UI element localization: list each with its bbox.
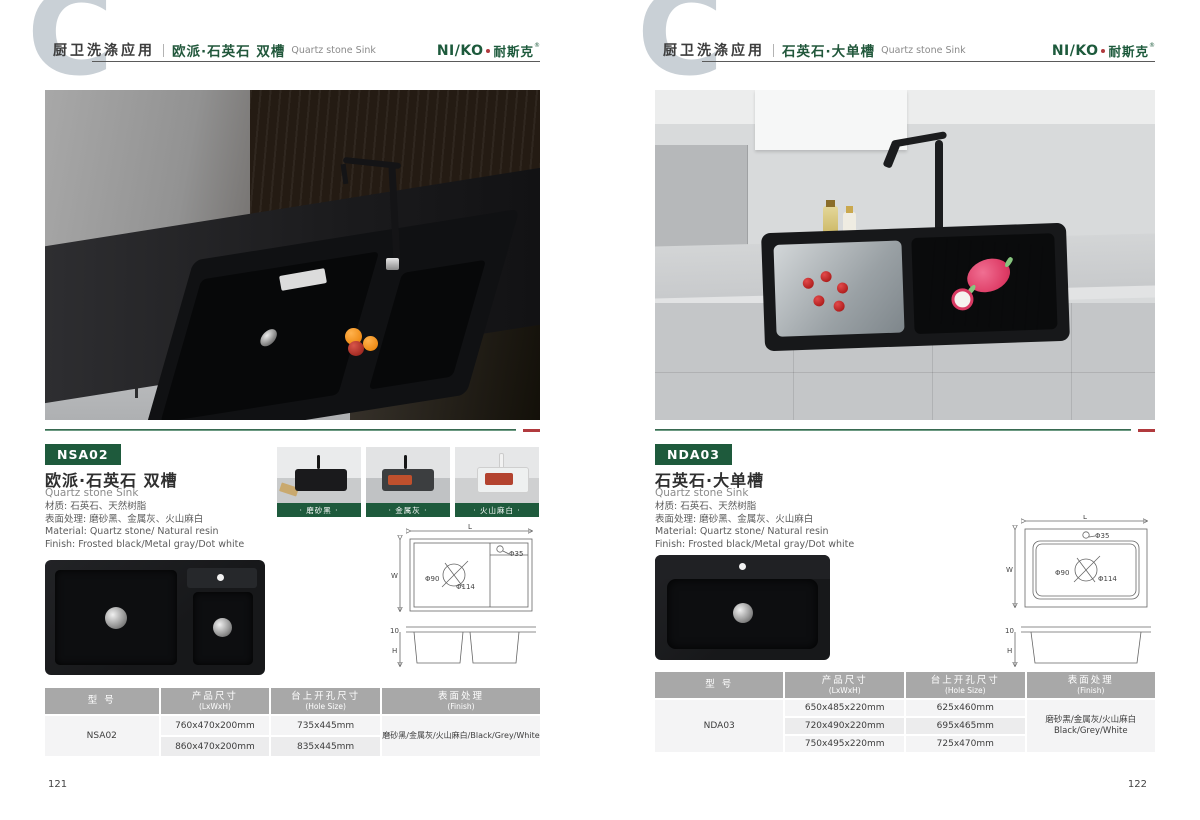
header-en: (Finish) [1077, 686, 1104, 695]
header-en: (LxWxH) [199, 702, 231, 711]
section-rule [45, 429, 540, 432]
category-title-cn: 欧派·石英石 双槽 [172, 40, 285, 60]
table-header-size: 产品尺寸 (LxWxH) [785, 672, 904, 698]
product-title-en: Quartz stone Sink [45, 487, 138, 499]
section-title: 厨卫洗涤应用 [53, 40, 155, 60]
swatch-label: · 金属灰 · [366, 503, 450, 517]
logo-latin-text: NI/KO [437, 43, 484, 59]
logo-red-dot [1101, 49, 1105, 53]
cell-hole: 625x460mm [906, 700, 1025, 716]
page-number: 122 [1128, 779, 1147, 790]
header-cn: 表面处理 [1068, 675, 1114, 686]
topview-faucet-hole [217, 574, 224, 581]
main-photo-nsa02 [45, 90, 540, 420]
diagram-faucet-hole [1083, 532, 1089, 538]
dim-label-d114: Φ114 [456, 583, 475, 591]
spec-material-cn: 材质: 石英石、天然树脂 [45, 501, 244, 514]
dimension-diagram: Φ35 Φ90 Φ114 L W 10 H [390, 523, 545, 673]
topview-drain [213, 618, 232, 637]
faucet-base [386, 258, 399, 270]
brand-logo: NI/KO 耐斯克 ® [1052, 41, 1155, 60]
swatch-sink-black [295, 469, 347, 491]
product-specs: 材质: 石英石、天然树脂 表面处理: 磨砂黑、金属灰、火山麻白 Material… [655, 501, 854, 551]
spec-finish-cn: 表面处理: 磨砂黑、金属灰、火山麻白 [45, 514, 244, 527]
swatch-faucet [404, 455, 407, 469]
finish-line: 磨砂黑/金属灰/火山麻白/Black/Grey/White [382, 731, 539, 742]
cell-hole: 695x465mm [906, 718, 1025, 734]
product-specs: 材质: 石英石、天然树脂 表面处理: 磨砂黑、金属灰、火山麻白 Material… [45, 501, 244, 551]
cell-finish: 磨砂黑/金属灰/火山麻白 Black/Grey/White [1027, 700, 1155, 752]
photo-orange [363, 336, 378, 351]
photo-wall-cabinet [755, 90, 907, 150]
model-badge: NDA03 [655, 444, 732, 465]
cell-finish: 磨砂黑/金属灰/火山麻白/Black/Grey/White [382, 716, 540, 756]
logo-reg-mark: ® [1149, 42, 1155, 49]
table-header-finish: 表面处理 (Finish) [382, 688, 540, 714]
dim-label-W: W [391, 572, 398, 580]
product-title-en: Quartz stone Sink [655, 487, 748, 499]
header-underline [92, 61, 540, 62]
swatch-faucet [317, 455, 320, 469]
dim-label-10: 10 [1005, 627, 1014, 635]
diagram-cross [1077, 558, 1095, 582]
tomato [803, 278, 814, 289]
cell-hole: 835x445mm [271, 737, 380, 756]
page-number: 121 [48, 779, 67, 790]
header-cn: 台上开孔尺寸 [291, 691, 360, 702]
header-cn: 产品尺寸 [192, 691, 238, 702]
cell-size: 760x470x200mm [161, 716, 270, 735]
header-en: (LxWxH) [829, 686, 861, 695]
cell-model: NDA03 [655, 700, 783, 752]
swatch-image [455, 447, 539, 503]
table-header-model: 型 号 [45, 688, 159, 714]
finish-line: Black/Grey/White [1054, 726, 1128, 737]
dim-label-L: L [468, 523, 472, 531]
dim-label-10: 10 [390, 627, 399, 635]
dim-label-H: H [1007, 647, 1012, 655]
finish-line: 磨砂黑/金属灰/火山麻白 [1045, 715, 1136, 726]
swatch-metal-gray: · 金属灰 · [366, 447, 450, 517]
sideview-basin1 [414, 632, 463, 663]
category-title-en: Quartz stone Sink [291, 45, 376, 56]
brand-logo: NI/KO 耐斯克 ® [437, 41, 540, 60]
logo-cn-text: 耐斯克 [493, 41, 534, 60]
main-photo-nda03 [655, 90, 1155, 420]
spec-table: 型 号 产品尺寸 (LxWxH) 台上开孔尺寸 (Hole Size) 表面处理… [45, 688, 540, 756]
topview-drain [105, 607, 127, 629]
header-separator [773, 44, 774, 57]
photo-apple [348, 341, 364, 356]
dim-label-d35: Φ35 [1095, 532, 1109, 540]
cell-size: 860x470x200mm [161, 737, 270, 756]
diagram-cross [1074, 556, 1100, 582]
catalog-page-122: C 厨卫洗涤应用 石英石·大单槽 Quartz stone Sink NI/KO… [655, 0, 1155, 820]
swatch-image [277, 447, 361, 503]
dim-label-d90: Φ90 [1055, 569, 1069, 577]
spec-material-en: Material: Quartz stone/ Natural resin [45, 526, 244, 539]
catalog-page-121: C 厨卫洗涤应用 欧派·石英石 双槽 Quartz stone Sink NI/… [45, 0, 540, 820]
header-cn: 产品尺寸 [822, 675, 868, 686]
logo-reg-mark: ® [534, 42, 540, 49]
header-en: (Finish) [447, 702, 474, 711]
sink-basin-small [369, 260, 486, 390]
header-cn: 台上开孔尺寸 [931, 675, 1000, 686]
dim-label-d35: Φ35 [509, 550, 523, 558]
bottle-cap [826, 200, 835, 207]
cell-hole: 725x470mm [906, 736, 1025, 752]
dim-label-W: W [1006, 566, 1013, 574]
cabinet-seam [655, 372, 1155, 373]
swatch-dot-white: · 火山麻白 · [455, 447, 539, 517]
header-cn: 型 号 [705, 679, 733, 690]
product-topview-photo [45, 560, 265, 675]
section-title: 厨卫洗涤应用 [663, 40, 765, 60]
cell-hole: 735x445mm [271, 716, 380, 735]
swatch-label: · 火山麻白 · [455, 503, 539, 517]
dim-label-H: H [392, 647, 397, 655]
model-badge: NSA02 [45, 444, 121, 465]
tomato [813, 295, 824, 306]
tomato [820, 271, 831, 282]
page-header: 厨卫洗涤应用 欧派·石英石 双槽 Quartz stone Sink [53, 40, 376, 60]
logo-red-dot [486, 49, 490, 53]
dim-label-d114: Φ114 [1098, 575, 1117, 583]
color-swatches: · 磨砂黑 · · 金属灰 · · 火山麻白 · [277, 447, 539, 517]
header-cn: 型 号 [88, 695, 116, 706]
page-header: 厨卫洗涤应用 石英石·大单槽 Quartz stone Sink [663, 40, 966, 60]
tomato [837, 282, 848, 293]
table-header-size: 产品尺寸 (LxWxH) [161, 688, 270, 714]
swatch-frosted-black: · 磨砂黑 · [277, 447, 361, 517]
category-title-cn: 石英石·大单槽 [782, 40, 875, 60]
sideview-basin [1031, 632, 1141, 663]
rule-green-line [655, 429, 1131, 431]
cell-size: 650x485x220mm [785, 700, 904, 716]
spec-finish-en: Finish: Frosted black/Metal gray/Dot whi… [655, 539, 854, 552]
dimension-diagram: Φ35 Φ90 Φ114 L W 10 H [1005, 515, 1160, 670]
rule-green-line [45, 429, 516, 431]
header-cn: 表面处理 [438, 691, 484, 702]
header-en: (Hole Size) [945, 686, 986, 695]
header-en: (Hole Size) [305, 702, 346, 711]
spec-finish-cn: 表面处理: 磨砂黑、金属灰、火山麻白 [655, 514, 854, 527]
section-rule [655, 429, 1155, 432]
table-header-finish: 表面处理 (Finish) [1027, 672, 1155, 698]
table-header-model: 型 号 [655, 672, 783, 698]
swatch-cutting-board [388, 475, 412, 485]
spec-material-cn: 材质: 石英石、天然树脂 [655, 501, 854, 514]
faucet-body [935, 140, 943, 238]
cell-size: 750x495x220mm [785, 736, 904, 752]
rule-red-tick [523, 429, 540, 432]
tomato [833, 300, 844, 311]
dim-label-L: L [1083, 515, 1087, 521]
cell-model: NSA02 [45, 716, 159, 756]
swatch-cutting-board [485, 473, 513, 485]
product-topview-photo [655, 555, 830, 660]
spec-finish-en: Finish: Frosted black/Metal gray/Dot whi… [45, 539, 244, 552]
swatch-image [366, 447, 450, 503]
topview-faucet-hole [739, 563, 746, 570]
logo-latin-text: NI/KO [1052, 43, 1099, 59]
table-header-hole: 台上开孔尺寸 (Hole Size) [271, 688, 380, 714]
header-underline [702, 61, 1155, 62]
diagram-faucet-hole [497, 546, 503, 552]
cell-size: 720x490x220mm [785, 718, 904, 734]
sideview-basin2 [470, 632, 519, 663]
dim-label-d90: Φ90 [425, 575, 439, 583]
header-separator [163, 44, 164, 57]
swatch-label: · 磨砂黑 · [277, 503, 361, 517]
topview-drain [733, 603, 753, 623]
category-title-en: Quartz stone Sink [881, 45, 966, 56]
bottle-cap [846, 206, 853, 213]
spec-material-en: Material: Quartz stone/ Natural resin [655, 526, 854, 539]
table-header-hole: 台上开孔尺寸 (Hole Size) [906, 672, 1025, 698]
spec-table: 型 号 产品尺寸 (LxWxH) 台上开孔尺寸 (Hole Size) 表面处理… [655, 672, 1155, 752]
rule-red-tick [1138, 429, 1155, 432]
photo-single-sink [761, 223, 1070, 352]
logo-cn-text: 耐斯克 [1108, 41, 1149, 60]
sink-stainless-colander [773, 240, 904, 336]
